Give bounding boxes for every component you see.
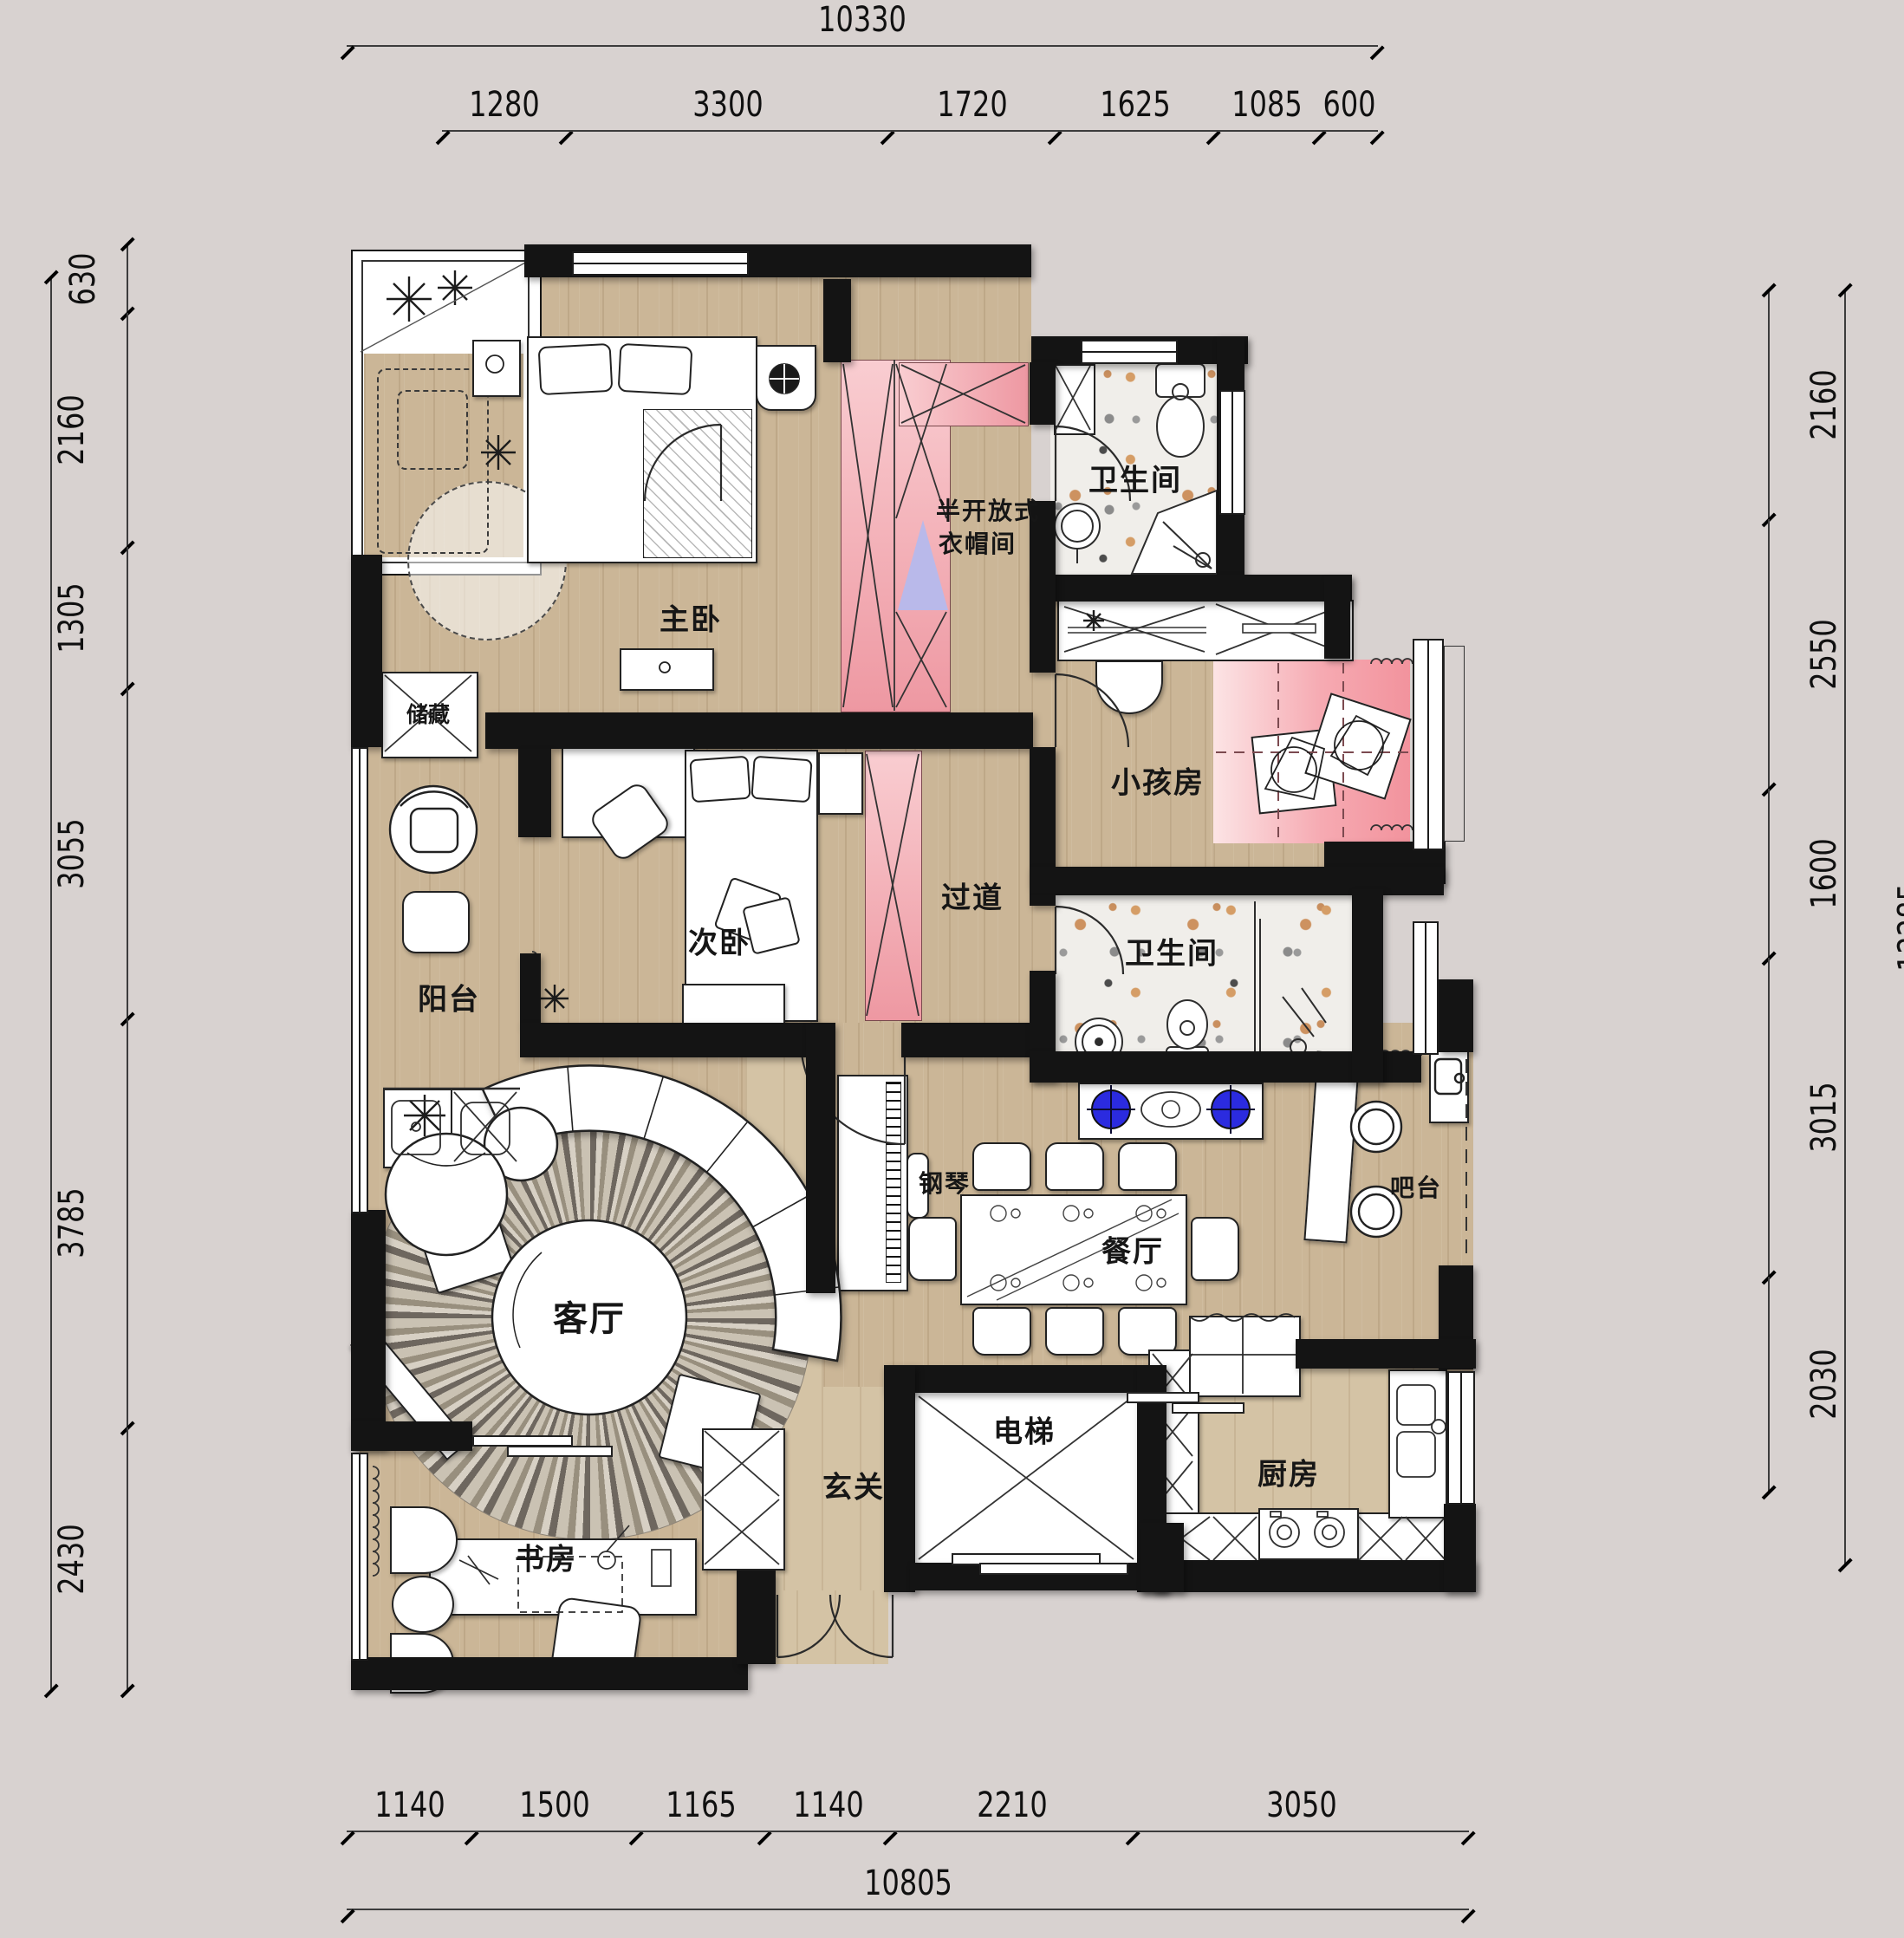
window <box>1413 639 1444 850</box>
wall <box>884 1365 1166 1393</box>
room-label-living-room: 客厅 <box>553 1291 626 1341</box>
wall <box>1444 1504 1476 1592</box>
wall <box>351 1421 472 1451</box>
wall <box>1030 895 1056 906</box>
window <box>1219 390 1245 515</box>
dim-left-segments: 630 2160 1305 3055 3785 2430 <box>87 244 128 1690</box>
wall <box>1140 1523 1184 1592</box>
window-frame <box>1444 646 1465 842</box>
room-label-corridor: 过道 <box>941 875 1004 917</box>
room-label-storage: 储藏 <box>406 698 450 729</box>
dim-bottom-segments: 1140 1500 1165 1140 2210 3050 <box>347 1791 1469 1832</box>
room-label-elevator: 电梯 <box>993 1408 1056 1451</box>
wall <box>737 1571 776 1664</box>
elevator-door <box>979 1563 1128 1575</box>
wall <box>1352 889 1383 1083</box>
wall <box>520 953 541 1026</box>
room-label-study: 书房 <box>515 1536 577 1578</box>
wall <box>485 712 1033 749</box>
wall <box>884 1365 915 1592</box>
room-label-kitchen: 厨房 <box>1257 1451 1320 1493</box>
plan-linework <box>0 0 1904 1938</box>
sliding-door <box>507 1446 613 1457</box>
sliding-door <box>1172 1402 1244 1414</box>
wall <box>1030 747 1056 886</box>
wall <box>520 1023 823 1057</box>
wall <box>1324 576 1350 659</box>
dim-bottom-total: 10805 <box>347 1869 1469 1910</box>
room-label-balcony: 阳台 <box>418 976 480 1018</box>
wall <box>518 749 551 837</box>
window <box>1081 340 1178 364</box>
wall <box>1031 575 1352 602</box>
wall <box>806 1023 835 1293</box>
window <box>572 251 749 276</box>
window <box>1447 1371 1475 1505</box>
dim-right-segments: 2160 2550 1600 3015 2030 <box>1768 290 1810 1492</box>
room-label-kids-room: 小孩房 <box>1111 759 1205 802</box>
wall <box>351 1657 748 1690</box>
window <box>351 747 368 1213</box>
wall <box>1030 362 1056 425</box>
wall <box>1153 1560 1476 1592</box>
room-label-bathroom-mid: 卫生间 <box>1125 930 1218 972</box>
room-label-cloakroom-2: 衣帽间 <box>939 525 1017 560</box>
window <box>351 1453 368 1661</box>
room-label-bathroom-top: 卫生间 <box>1088 457 1182 499</box>
wall <box>351 1210 386 1449</box>
dim-right-total: 12285 <box>1844 290 1886 1564</box>
window <box>1413 921 1439 1055</box>
room-label-second-bedroom: 次卧 <box>688 920 751 962</box>
dim-top-total: 10330 <box>347 5 1378 47</box>
room-label-foyer: 玄关 <box>822 1464 885 1506</box>
dim-top-segments: 1280 3300 1720 1625 1085 600 <box>442 90 1378 132</box>
room-label-dining-room: 餐厅 <box>1101 1228 1164 1271</box>
room-label-bar: 吧台 <box>1390 1169 1442 1204</box>
wall <box>901 1023 1033 1057</box>
wall <box>1296 1339 1476 1369</box>
wall <box>823 279 851 362</box>
dim-left-total: 13490 <box>10 277 52 1690</box>
wall <box>1439 979 1473 1052</box>
room-label-cloakroom-1: 半开放式 <box>936 492 1040 527</box>
floor-plan-canvas: 主卧 半开放式 衣帽间 卫生间 小孩房 过道 次卧 阳台 储藏 卫生间 客厅 钢… <box>0 0 1904 1938</box>
room-label-master-bedroom: 主卧 <box>660 596 722 639</box>
wall <box>351 555 382 747</box>
room-label-piano: 钢琴 <box>919 1165 971 1200</box>
